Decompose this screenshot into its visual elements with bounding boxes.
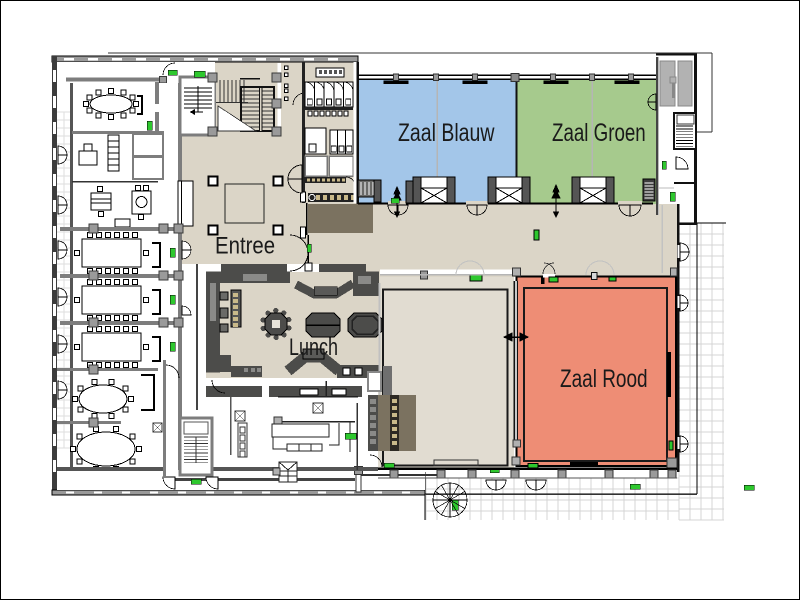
svg-text:Zaal Rood: Zaal Rood <box>560 364 648 392</box>
svg-text:Zaal Blauw: Zaal Blauw <box>398 119 495 147</box>
svg-text:Lunch: Lunch <box>289 335 338 361</box>
svg-text:Entree: Entree <box>215 232 275 259</box>
svg-text:Zaal Groen: Zaal Groen <box>552 118 646 146</box>
